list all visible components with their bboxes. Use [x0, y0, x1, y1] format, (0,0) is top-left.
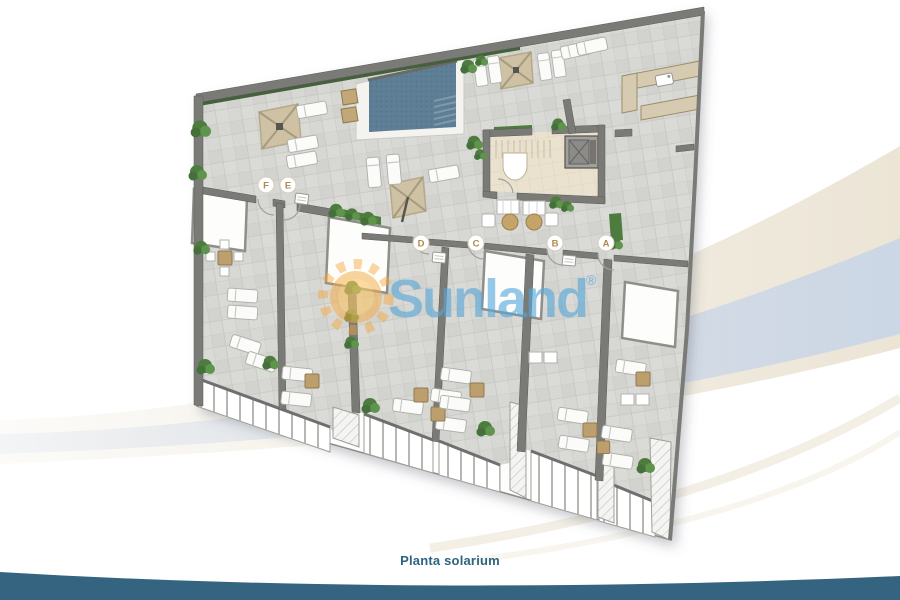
unit-label-d: D [413, 235, 429, 251]
unit-label-b-text: B [552, 239, 559, 250]
watermark-registered-mark: ® [586, 272, 597, 288]
unit-label-f-text: F [263, 181, 269, 192]
watermark-brand-text: Sunland [388, 269, 587, 329]
stair-landing [503, 153, 527, 180]
core-building [486, 129, 601, 196]
unit-label-a: A [598, 235, 614, 251]
unit-label-a-text: A [603, 239, 610, 250]
watermark: Sunland ® [323, 264, 597, 330]
unit-label-c-text: C [473, 239, 480, 250]
unit-label-b: B [547, 235, 563, 251]
unit-label-e: E [280, 177, 296, 193]
caption-planta-solarium: Planta solarium [0, 553, 900, 568]
unit-label-c: C [468, 235, 484, 251]
pergola-2 [499, 52, 533, 89]
unit-label-f: F [258, 177, 274, 193]
access-box-a [622, 282, 678, 347]
screenshot-root: F E D C B A [0, 0, 900, 600]
stairs-a-right [650, 438, 671, 540]
unit-label-e-text: E [285, 181, 291, 192]
elevator-icon [565, 136, 598, 168]
floorplan-image: F E D C B A [0, 0, 900, 600]
unit-label-d-text: D [418, 239, 425, 250]
